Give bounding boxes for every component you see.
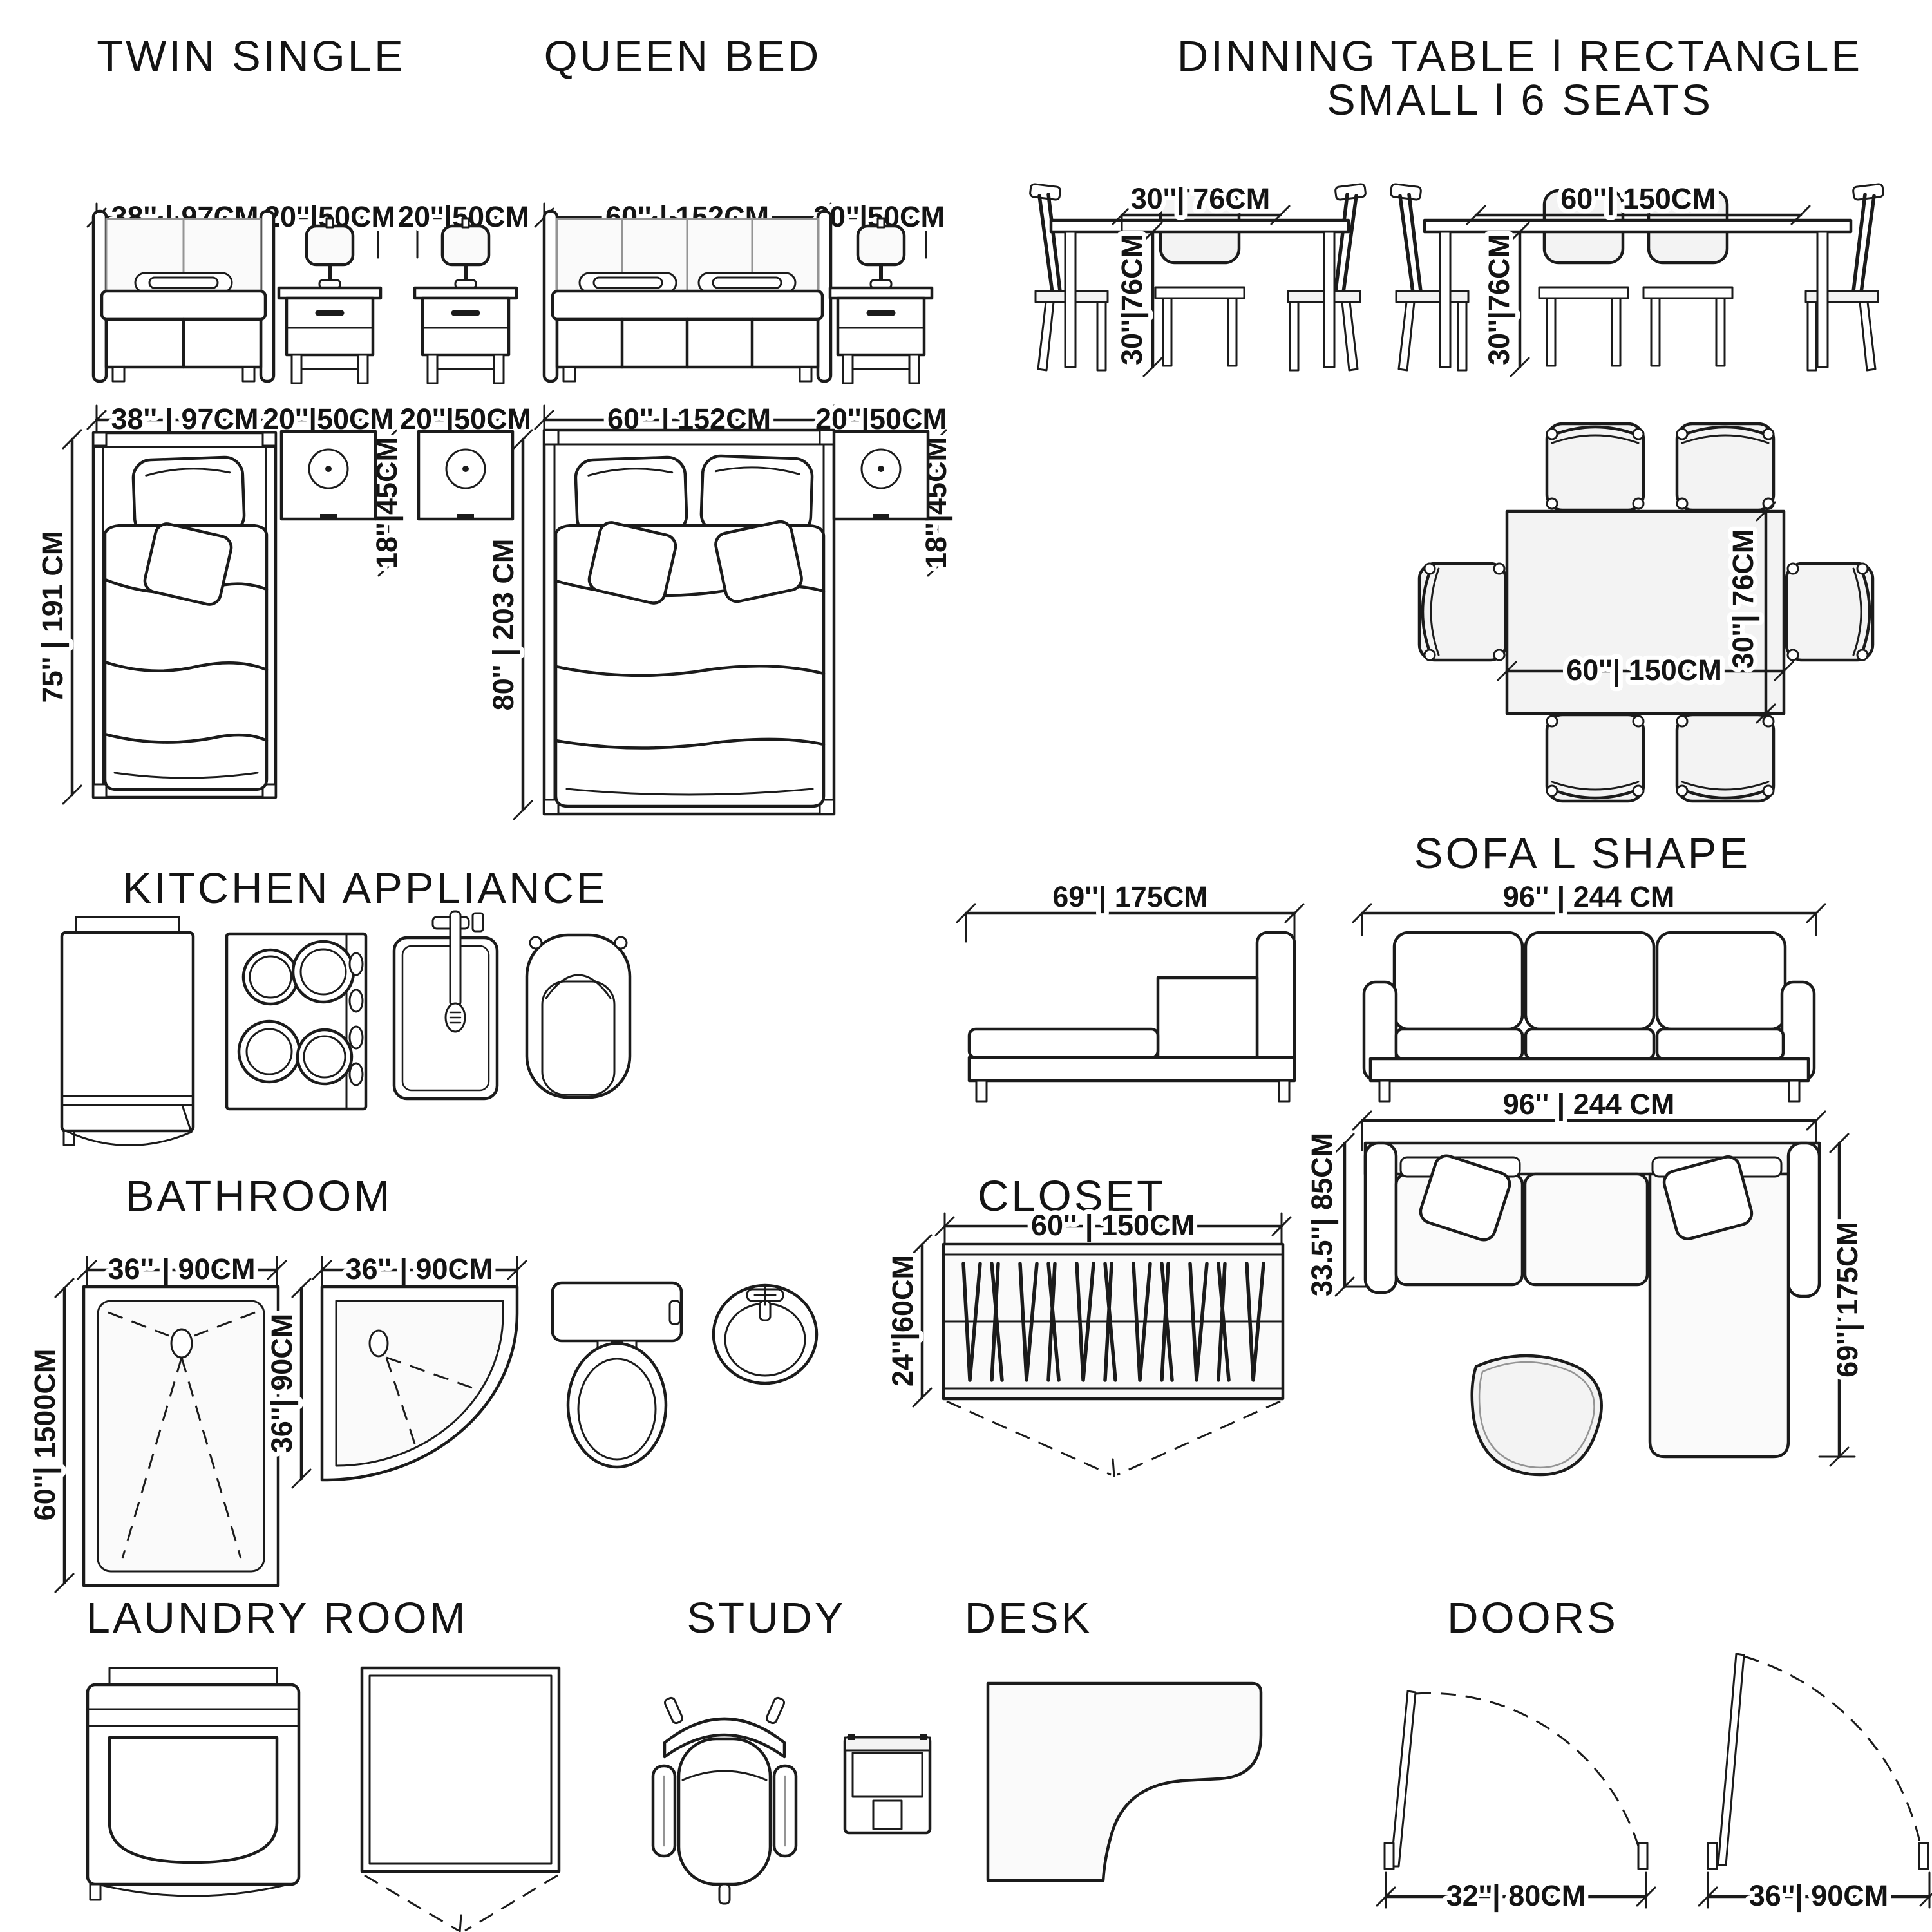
dim-twin-length: 75'' | 191 CM xyxy=(36,430,81,804)
queen-bed-elevation xyxy=(544,211,831,381)
section-dining-table: DINNING TABLE l RECTANGLE SMALL l 6 SEAT… xyxy=(1030,32,1884,801)
fridge-plan xyxy=(62,917,193,1146)
section-laundry: LAUNDRY ROOM xyxy=(86,1594,559,1932)
dim-sofa-plan-depth: 33.5''| 85CM xyxy=(1305,1133,1368,1296)
dim-dining-small-height: 30''|76CM xyxy=(1115,223,1162,376)
dim-dining-large-width: 60''| 150CM xyxy=(1467,182,1810,224)
dim-label: 80'' | 203 CM xyxy=(487,539,520,711)
sofa-chaise-elevation xyxy=(969,933,1294,1101)
section-study-desk: STUDY DESK xyxy=(653,1594,1261,1904)
twin-nightstand-plan xyxy=(281,431,375,520)
dim-sofa-width: 96'' | 244 CM xyxy=(1353,880,1825,935)
title-doors: DOORS xyxy=(1447,1594,1618,1642)
dim-label: 36'' | 90CM xyxy=(345,1253,493,1286)
dryer-plan xyxy=(362,1668,559,1932)
title-dining-line1: DINNING TABLE l RECTANGLE xyxy=(1177,32,1862,80)
dim-label: 60'' | 150CM xyxy=(1031,1209,1195,1242)
dining-plan: 60''| 150CM 30''| 76CM xyxy=(1419,424,1873,801)
dim-label: 33.5''| 85CM xyxy=(1305,1133,1339,1296)
dim-label: 69''| 175CM xyxy=(1052,880,1208,914)
dim-label: 69''| 175CM xyxy=(1831,1222,1864,1378)
queen-nightstand-left-plan xyxy=(419,431,513,520)
section-doors: DOORS 32''| 80CM 36 xyxy=(1377,1594,1932,1913)
twin-bed-elevation xyxy=(93,211,274,381)
dim-label: 32''| 80CM xyxy=(1446,1879,1586,1913)
title-study: STUDY xyxy=(687,1594,846,1642)
dim-sofa-chaise-length: 69''| 175CM xyxy=(1819,1134,1864,1466)
corner-desk-plan xyxy=(988,1683,1261,1880)
dim-shower-length: 60''| 1500CM xyxy=(28,1279,73,1592)
section-kitchen: KITCHEN APPLIANCE xyxy=(62,864,630,1146)
shower-rect-plan xyxy=(84,1287,278,1586)
twin-bed-plan xyxy=(93,433,276,797)
door-small: 32''| 80CM xyxy=(1377,1691,1655,1913)
kitchen-armchair-plan xyxy=(527,935,630,1097)
queen-nightstand-right-plan xyxy=(834,431,928,520)
cooktop-plan xyxy=(227,934,366,1109)
dim-label: 38'' | 97CM xyxy=(111,402,258,436)
dim-closet-depth: 24''|60CM xyxy=(886,1235,931,1406)
closet-plan xyxy=(943,1244,1283,1476)
dim-label: 36''| 90CM xyxy=(265,1314,299,1454)
section-closet: CLOSET 60'' | 150CM 24''|60CM xyxy=(886,1172,1291,1476)
dim-label: 60''| 1500CM xyxy=(28,1349,62,1521)
dim-label: 30''| 76CM xyxy=(1131,182,1271,216)
dim-sofa-chaise-width: 69''| 175CM xyxy=(957,880,1303,942)
furniture-dimension-sheet: TWIN SINGLE 38'' | 97CM 20''|50CM xyxy=(0,0,1932,1932)
coffee-table-plan xyxy=(1472,1356,1602,1475)
door-large: 36''| 90CM xyxy=(1699,1654,1932,1913)
dim-door-small: 32''| 80CM xyxy=(1377,1873,1655,1913)
dim-label: 30''|76CM xyxy=(1482,234,1516,365)
twin-nightstand-elevation xyxy=(279,218,381,383)
section-bathroom: BATHROOM 36'' | 90CM 60''| 1500CM xyxy=(28,1172,817,1592)
title-bathroom: BATHROOM xyxy=(126,1172,392,1220)
office-chair-plan xyxy=(653,1696,796,1904)
sink-plan xyxy=(394,911,497,1099)
dim-label: 36'' | 90CM xyxy=(108,1253,255,1286)
title-queen-bed: QUEEN BED xyxy=(544,32,822,80)
section-queen-bed: QUEEN BED 20''|50CM 60'' | 152CM 20''|50… xyxy=(398,32,953,819)
section-twin-single: TWIN SINGLE 38'' | 97CM 20''|50CM xyxy=(36,32,406,804)
dim-sofa-plan-width: 96'' | 244 CM xyxy=(1353,1088,1825,1150)
toilet-plan xyxy=(553,1283,681,1467)
queen-nightstand-left-elevation xyxy=(415,218,516,383)
title-kitchen: KITCHEN APPLIANCE xyxy=(122,864,607,913)
dim-label: 36''| 90CM xyxy=(1749,1879,1889,1913)
laptop-plan xyxy=(845,1734,930,1833)
dim-label: 60''| 150CM xyxy=(1560,182,1716,216)
title-twin-single: TWIN SINGLE xyxy=(97,32,406,80)
dim-label: 96'' | 244 CM xyxy=(1503,880,1675,914)
dim-label: 96'' | 244 CM xyxy=(1503,1088,1675,1121)
dim-label: 30''|76CM xyxy=(1115,234,1149,365)
dim-label: 60''| 150CM xyxy=(1566,654,1722,687)
dim-label: 30''| 76CM xyxy=(1727,529,1760,669)
washer-plan xyxy=(88,1668,299,1900)
dim-door-large: 36''| 90CM xyxy=(1699,1873,1932,1913)
sofa-front-elevation xyxy=(1364,933,1814,1101)
queen-bed-plan xyxy=(544,430,834,814)
dim-dining-large-height: 30''|76CM xyxy=(1482,223,1529,376)
title-desk: DESK xyxy=(965,1594,1092,1642)
dim-label: 24''|60CM xyxy=(886,1255,920,1387)
title-sofa: SOFA L SHAPE xyxy=(1414,829,1750,878)
corner-shower-plan xyxy=(322,1287,517,1480)
queen-nightstand-right-elevation xyxy=(830,218,932,383)
bathroom-sink-plan xyxy=(714,1285,817,1383)
title-laundry: LAUNDRY ROOM xyxy=(86,1594,468,1642)
title-dining-line2: SMALL l 6 SEATS xyxy=(1327,76,1713,124)
dim-label: 75'' | 191 CM xyxy=(36,531,70,703)
